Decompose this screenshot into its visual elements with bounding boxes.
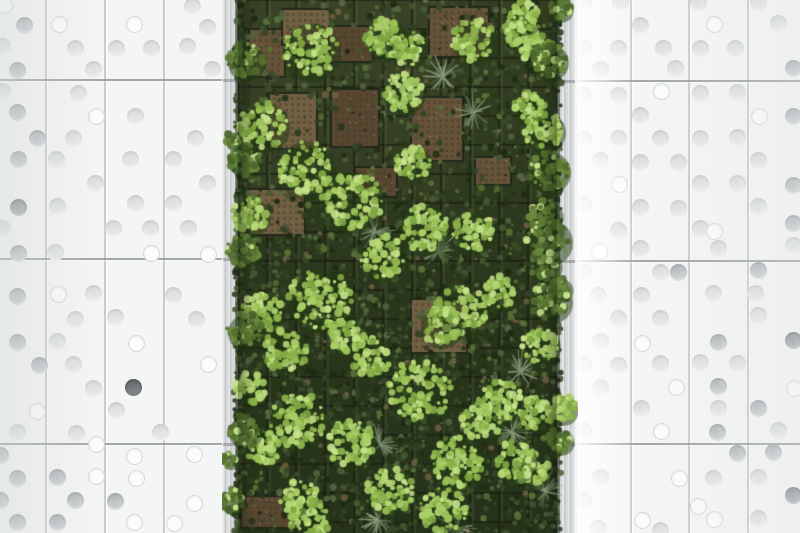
perforation-dot <box>670 200 687 217</box>
perforation-dot <box>785 60 800 77</box>
perforation-dot <box>727 40 744 57</box>
perforation-dot <box>785 177 800 194</box>
perforation-dot <box>68 425 85 442</box>
perforation-dot <box>88 108 105 125</box>
perforation-dot <box>591 243 608 260</box>
perforation-dot <box>107 493 124 510</box>
perforation-dot <box>592 469 609 486</box>
perforation-dot <box>0 0 13 14</box>
perforation-dot <box>49 469 66 486</box>
panel-seam-horizontal <box>575 443 800 445</box>
perforation-dot <box>592 152 609 169</box>
perforation-dot <box>87 175 104 192</box>
perforation-dot <box>126 514 143 531</box>
perforation-dot <box>143 245 160 262</box>
perforation-dot <box>652 310 669 327</box>
perforation-dot <box>729 445 746 462</box>
perforation-dot <box>729 355 746 372</box>
perforation-dot <box>187 130 204 147</box>
perforation-dot <box>67 311 84 328</box>
perforation-dot <box>670 264 687 281</box>
perforation-dot <box>9 62 26 79</box>
perforation-dot <box>692 40 709 57</box>
perforation-dot <box>592 333 609 350</box>
perforation-dot <box>9 514 26 531</box>
perforation-dot <box>590 287 607 304</box>
perforation-dot <box>186 446 203 463</box>
perforation-dot <box>166 515 183 532</box>
perforation-dot <box>10 199 27 216</box>
perforation-dot <box>692 130 709 147</box>
perforation-dot <box>88 468 105 485</box>
perforation-dot <box>85 380 102 397</box>
perforation-dot <box>29 130 46 147</box>
perforation-dot <box>671 470 688 487</box>
perforation-dot <box>9 104 26 121</box>
perforation-dot <box>142 220 159 237</box>
perforation-dot <box>85 61 102 78</box>
perforation-dot <box>49 198 66 215</box>
panel-seam-horizontal <box>0 443 222 445</box>
right-perforated-panel-wall <box>575 0 800 533</box>
perforation-dot <box>706 511 723 528</box>
perforation-dot <box>31 357 48 374</box>
perforation-dot <box>165 195 182 212</box>
perforation-dot <box>165 151 182 168</box>
perforation-dot <box>65 356 82 373</box>
perforation-dot <box>50 286 67 303</box>
panel-seam-horizontal <box>575 80 800 82</box>
perforation-dot <box>9 334 26 351</box>
perforation-dot <box>199 175 216 192</box>
perforation-dot <box>706 16 723 33</box>
panel-seam-horizontal <box>575 260 800 262</box>
perforation-dot <box>9 424 26 441</box>
perforation-dot <box>750 198 767 215</box>
perforation-dot <box>652 522 669 533</box>
perforation-dot <box>692 85 709 102</box>
left-perforated-panel-wall <box>0 0 222 533</box>
perforation-dot <box>200 356 217 373</box>
perforation-dot <box>165 287 182 304</box>
perforation-dot <box>610 40 627 57</box>
perforation-dot <box>750 400 767 417</box>
perforation-dot <box>751 108 768 125</box>
perforation-dot <box>750 510 767 527</box>
perforation-dot <box>692 175 709 192</box>
perforation-dot <box>634 512 651 529</box>
perforation-dot <box>47 244 64 261</box>
perforation-dot <box>652 355 669 372</box>
perforation-dot <box>610 87 627 104</box>
perforation-dot <box>729 129 746 146</box>
perforation-dot <box>67 492 84 509</box>
perforation-dot <box>750 0 767 11</box>
perforation-dot <box>785 108 800 125</box>
perforation-dot <box>729 84 746 101</box>
perforation-dot <box>9 288 26 305</box>
perforation-dot <box>653 83 670 100</box>
perforation-dot <box>765 444 782 461</box>
perforation-dot <box>0 220 11 237</box>
perforation-dot <box>653 423 670 440</box>
perforation-dot <box>750 152 767 169</box>
perforation-dot <box>107 309 124 326</box>
perforation-dot <box>750 262 767 279</box>
perforation-dot <box>199 19 216 36</box>
perforation-dot <box>0 38 11 55</box>
perforation-dot <box>634 335 651 352</box>
living-green-wall-photo <box>222 0 578 533</box>
perforation-dot <box>188 311 205 328</box>
perforation-dot <box>747 285 764 302</box>
perforation-dot <box>705 470 722 487</box>
perforation-dot <box>611 176 628 193</box>
perforation-dot <box>48 151 65 168</box>
perforation-dot <box>705 285 722 302</box>
perforation-dot <box>29 403 46 420</box>
perforation-dot <box>667 60 684 77</box>
perforation-dot <box>770 422 787 439</box>
perforation-dot <box>143 40 160 57</box>
perforation-dot <box>655 40 672 57</box>
perforation-dot <box>652 264 669 281</box>
perforation-dot <box>204 61 221 78</box>
perforation-dot <box>592 61 609 78</box>
perforation-dot <box>186 495 203 512</box>
perforation-dot <box>70 85 87 102</box>
perforation-dot <box>670 154 687 171</box>
perforation-dot <box>152 424 169 441</box>
perforation-dot <box>632 154 649 171</box>
perforation-dot <box>128 470 145 487</box>
perforation-dot <box>785 332 800 349</box>
perforation-dot <box>610 357 627 374</box>
perforation-dot <box>180 220 197 237</box>
perforation-dot <box>785 487 800 504</box>
perforation-dot <box>786 380 800 397</box>
perforation-dot <box>632 107 649 124</box>
perforation-dot <box>633 400 650 417</box>
perforation-dot <box>127 195 144 212</box>
perforation-dot <box>632 240 649 257</box>
perforation-dot <box>108 40 125 57</box>
perforation-dot <box>184 0 201 15</box>
perforation-dot <box>710 400 727 417</box>
perforation-dot <box>179 38 196 55</box>
perforation-dot <box>67 40 84 57</box>
perforation-dot <box>710 240 727 257</box>
perforation-dot <box>128 335 145 352</box>
perforation-dot <box>65 130 82 147</box>
perforation-dot <box>10 151 27 168</box>
perforation-dot <box>49 514 66 531</box>
perforation-dot <box>612 0 629 11</box>
perforation-dot <box>125 379 142 396</box>
perforation-dot <box>200 246 217 263</box>
perforation-dot <box>122 151 139 168</box>
perforation-dot <box>785 237 800 254</box>
perforation-dot <box>750 469 767 486</box>
perforation-dot <box>770 15 787 32</box>
perforation-dot <box>692 354 709 371</box>
perforation-dot <box>632 199 649 216</box>
perforation-dot <box>592 379 609 396</box>
panel-seam-horizontal <box>0 258 222 260</box>
perforation-dot <box>126 16 143 33</box>
perforation-dot <box>51 16 68 33</box>
perforation-dot <box>610 222 627 239</box>
perforation-dot <box>0 447 9 464</box>
panel-seam-horizontal <box>0 79 222 81</box>
perforation-dot <box>85 285 102 302</box>
perforation-dot <box>88 436 105 453</box>
perforation-dot <box>785 215 800 232</box>
perforation-dot <box>690 498 707 515</box>
perforation-dot <box>0 83 11 100</box>
perforation-dot <box>610 310 627 327</box>
perforation-dot <box>706 223 723 240</box>
perforation-dot <box>590 520 607 533</box>
perforation-dot <box>108 402 125 419</box>
perforation-dot <box>729 175 746 192</box>
perforation-dot <box>105 220 122 237</box>
perforation-dot <box>709 424 726 441</box>
perforation-dot <box>0 492 9 509</box>
perforation-dot <box>633 287 650 304</box>
perforation-dot <box>126 448 143 465</box>
perforation-dot <box>652 130 669 147</box>
perforation-dot <box>127 108 144 125</box>
perforation-dot <box>690 0 707 11</box>
perforation-dot <box>632 17 649 34</box>
perforation-dot <box>668 379 685 396</box>
perforation-dot <box>610 130 627 147</box>
perforation-dot <box>710 334 727 351</box>
perforation-dot <box>16 17 33 34</box>
photo-green-wall-facade <box>0 0 800 533</box>
perforation-dot <box>750 307 767 324</box>
perforation-dot <box>10 245 27 262</box>
perforation-dot <box>49 333 66 350</box>
perforation-dot <box>9 470 26 487</box>
perforation-dot <box>710 378 727 395</box>
